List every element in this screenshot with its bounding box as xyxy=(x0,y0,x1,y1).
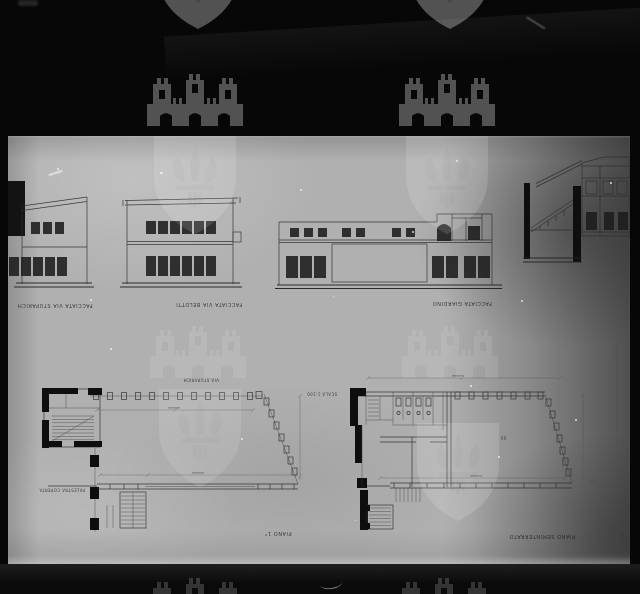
watermark-shield-icon xyxy=(148,0,248,32)
plan-basement-title-label: PIANO SEMINTERRATO xyxy=(509,533,575,539)
plan-basement-drawing xyxy=(350,375,595,530)
plan-first-street-label: VIA STUPARICH xyxy=(183,378,219,383)
frame-smudge xyxy=(18,0,38,6)
archival-photo-frame: FACCIATA VIA STUPARICH FACCIATA VIA BELO… xyxy=(0,0,640,594)
section-drawing xyxy=(523,157,630,550)
elevation-center-drawing xyxy=(120,197,242,287)
elevation-left-drawing xyxy=(9,197,94,287)
architectural-drawings xyxy=(8,136,630,564)
frame-bottom-band xyxy=(0,564,640,594)
margin-mark: J xyxy=(621,532,623,539)
elevation-garden-drawing xyxy=(275,214,502,289)
plan-first-room-label: PALESTRA COPERTA xyxy=(39,488,85,493)
plan-first-title-label: PIANO 1° xyxy=(264,530,291,536)
elevation-garden-label: FACCIATA GIARDINO xyxy=(432,300,492,306)
watermark-castle-icon xyxy=(145,74,245,126)
glass-glare xyxy=(164,7,640,82)
watermark-castle-icon xyxy=(397,74,497,126)
elevation-center-label: FACCIATA VIA BELOTTI xyxy=(176,301,242,307)
plan-first-floor-drawing xyxy=(42,388,302,532)
scale-note-label: SCALA 1:100 xyxy=(307,392,337,397)
elevation-left-label: FACCIATA VIA STUPARICH xyxy=(17,302,92,308)
